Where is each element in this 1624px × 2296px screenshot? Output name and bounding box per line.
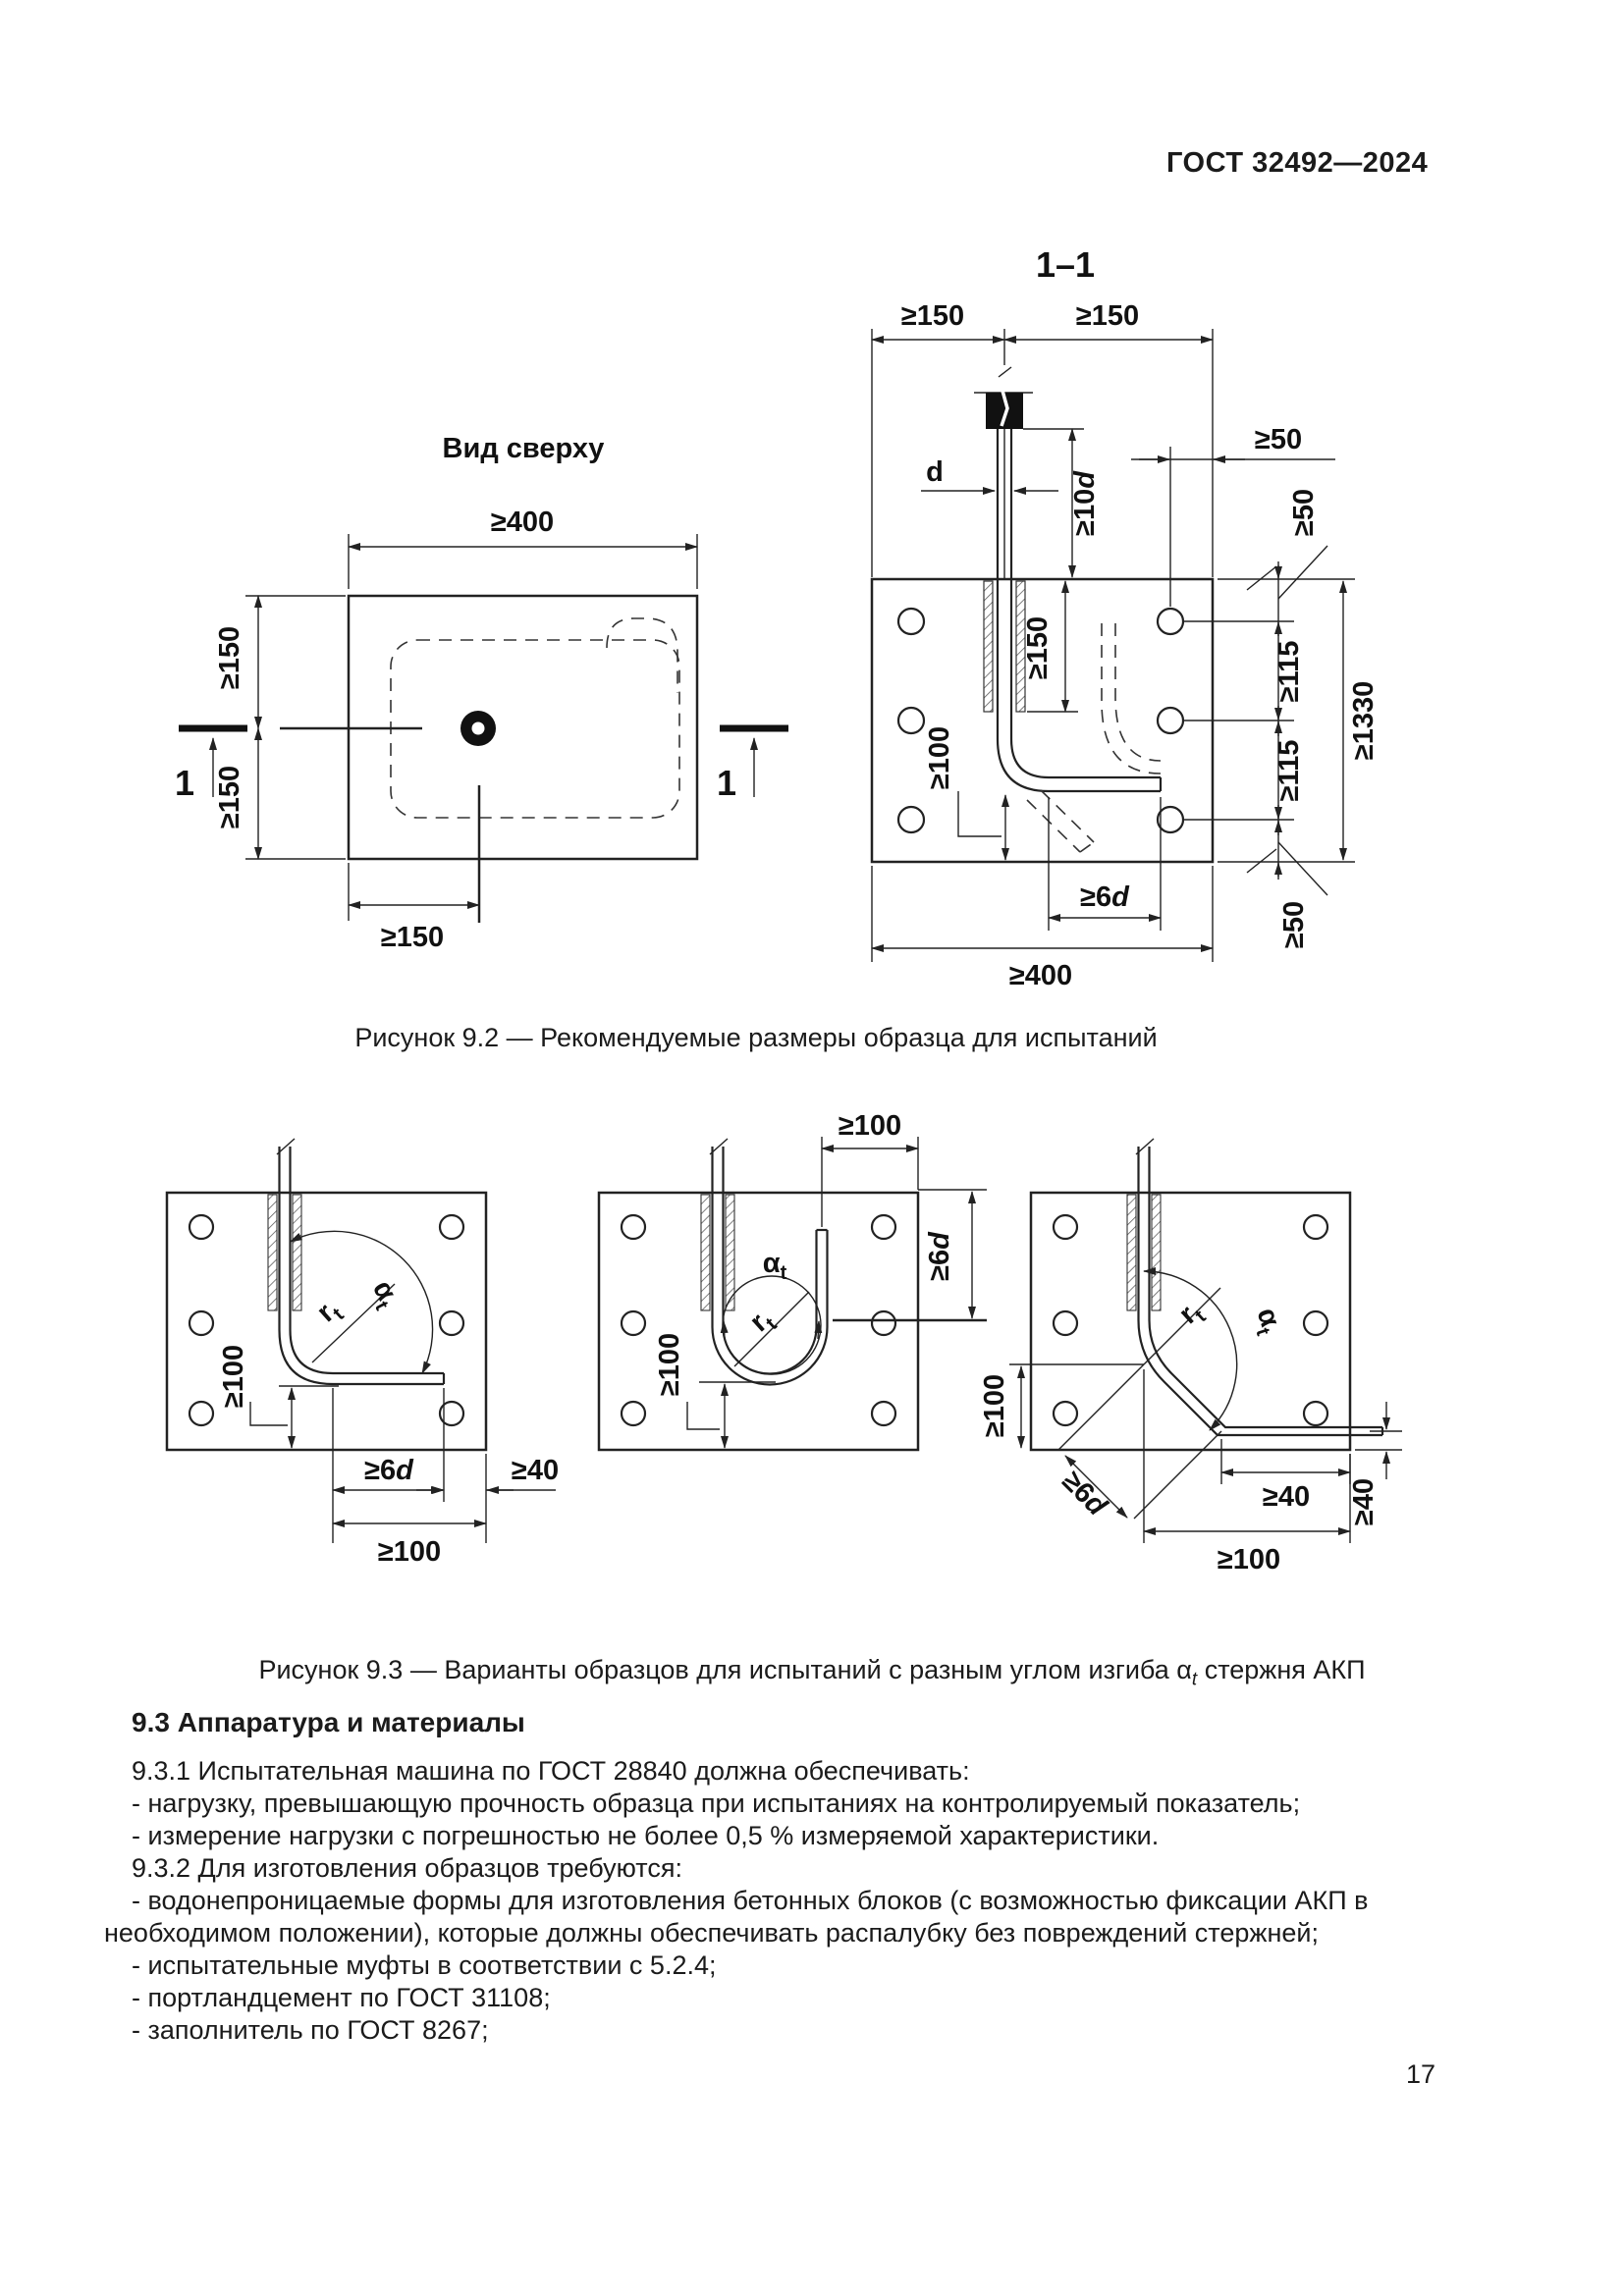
dim-anchor-length: ≥10d — [1023, 429, 1101, 577]
dim-tail-length: ≥6d — [1056, 1364, 1221, 1522]
figure-9-2-drawing: 1–1 Вид сверху 1 1 — [0, 226, 1624, 1001]
dim-edge-top: ≥50 — [1288, 489, 1320, 536]
bend-angle-annotation: αt rt — [291, 1231, 433, 1373]
caption-text: стержня АКП — [1197, 1655, 1365, 1684]
section-marker-right: 1 — [717, 728, 788, 803]
list-item: - испытательные муфты в соответствии с 5… — [104, 1949, 1492, 1982]
section-heading: 9.3 Аппаратура и материалы — [104, 1706, 1492, 1738]
dim-embed-depth: ≥100 — [979, 1364, 1144, 1448]
dim-tail-length: ≥6d — [1049, 797, 1161, 931]
dim-embed-depth: ≥100 — [654, 1333, 776, 1448]
radius-label: rt — [744, 1303, 782, 1342]
dim-tail-length: ≥6d ≥40 ≥100 — [333, 1388, 559, 1568]
paragraph-9-3-1: 9.3.1 Испытательная машина по ГОСТ 28840… — [104, 1755, 1492, 1788]
caption-text: Рисунок 9.3 — Варианты образцов для испы… — [258, 1655, 1191, 1684]
top-view-title: Вид сверху — [443, 433, 605, 464]
svg-text:≥400: ≥400 — [491, 507, 554, 538]
frp-rod — [268, 1139, 444, 1384]
svg-text:≥150: ≥150 — [901, 300, 964, 332]
svg-text:≥400: ≥400 — [1009, 960, 1072, 991]
svg-text:≥100: ≥100 — [979, 1374, 1010, 1437]
radius-label: rt — [311, 1293, 349, 1332]
variant-90deg: αt rt ≥100 ≥6d ≥40 ≥100 — [167, 1139, 559, 1568]
svg-text:≥40: ≥40 — [1348, 1478, 1380, 1525]
figure-9-2-caption: Рисунок 9.2 — Рекомендуемые размеры обра… — [0, 1023, 1512, 1053]
dim-hole-spacing-1: ≥115 — [1273, 641, 1305, 703]
section-label: 1–1 — [1036, 244, 1095, 285]
variant-135deg: αt rt ≥100 ≥6d ≥40 — [979, 1139, 1402, 1575]
dim-edge-bottom: ≥50 — [1278, 901, 1310, 948]
list-item: - водонепроницаемые формы для изготовлен… — [104, 1885, 1492, 1949]
top-view: Вид сверху 1 1 — [175, 433, 788, 953]
alpha-label: αt — [763, 1248, 787, 1284]
list-item: - заполнитель по ГОСТ 8267; — [104, 2014, 1492, 2047]
doc-number: ГОСТ 32492—2024 — [1166, 147, 1428, 180]
section-view: ≥150 ≥150 — [872, 300, 1380, 991]
dim-bottom: ≥150 — [349, 785, 479, 953]
svg-text:≥6d: ≥6d — [1056, 1466, 1113, 1523]
svg-text:≥150: ≥150 — [1076, 300, 1139, 332]
list-item: - нагрузку, превышающую прочность образц… — [104, 1788, 1492, 1820]
svg-text:≥100: ≥100 — [654, 1333, 685, 1396]
svg-text:≥50: ≥50 — [1255, 424, 1302, 455]
dim-hole-spacing-2: ≥115 — [1273, 740, 1305, 802]
dim-sleeve-length: ≥150 — [1022, 581, 1078, 712]
svg-text:≥6d: ≥6d — [1080, 881, 1130, 913]
svg-text:≥6d: ≥6d — [924, 1231, 955, 1281]
anchor-head — [974, 329, 1033, 429]
svg-text:≥150: ≥150 — [214, 626, 245, 689]
section-9-3: 9.3 Аппаратура и материалы 9.3.1 Испытат… — [104, 1706, 1492, 2047]
dim-bottom: ≥100 — [378, 1536, 441, 1568]
svg-text:≥150: ≥150 — [381, 922, 444, 953]
rod-hole-mark — [460, 711, 496, 746]
list-item: - портландцемент по ГОСТ 31108; — [104, 1982, 1492, 2014]
dim-total-height: ≥1330 — [1348, 681, 1380, 760]
paragraph-9-3-2: 9.3.2 Для изготовления образцов требуютс… — [104, 1852, 1492, 1885]
figure-9-3-drawing: αt rt ≥100 ≥6d ≥40 ≥100 — [0, 1070, 1624, 1620]
section-marker-label: 1 — [717, 763, 736, 803]
radius-label: rt — [1173, 1295, 1211, 1334]
svg-text:≥6d: ≥6d — [364, 1455, 414, 1486]
svg-text:≥150: ≥150 — [214, 766, 245, 828]
test-sleeve-hatched — [984, 581, 1025, 712]
svg-text:≥40: ≥40 — [1263, 1481, 1310, 1513]
svg-text:d: d — [926, 456, 944, 488]
svg-text:≥100: ≥100 — [1218, 1544, 1280, 1575]
variant-180deg: αt rt ≥100 ≥6d ≥100 — [599, 1110, 987, 1450]
frp-rod — [1127, 1139, 1382, 1435]
dim-edge-right: ≥40 — [1348, 1402, 1402, 1525]
svg-text:≥100: ≥100 — [218, 1345, 249, 1408]
dim-rod-diameter: d — [921, 456, 1058, 491]
figure-9-3-caption: Рисунок 9.3 — Варианты образцов для испы… — [0, 1655, 1624, 1690]
dim-edge: ≥40 — [512, 1455, 559, 1486]
svg-text:≥10d: ≥10d — [1069, 470, 1101, 536]
page-number: 17 — [1406, 2059, 1435, 2090]
svg-text:≥100: ≥100 — [924, 726, 955, 789]
list-item: - измерение нагрузки с погрешностью не б… — [104, 1820, 1492, 1852]
dim-top: ≥100 — [822, 1110, 918, 1227]
dim-width: ≥400 — [349, 507, 697, 589]
svg-text:≥150: ≥150 — [1022, 616, 1054, 679]
embedded-rod-outline-dashed — [391, 640, 679, 818]
dim-embed-depth: ≥100 — [924, 726, 1005, 860]
dim-section-width: ≥400 — [872, 866, 1213, 991]
svg-text:≥100: ≥100 — [839, 1110, 901, 1142]
dim-embed-depth: ≥100 — [218, 1345, 339, 1448]
dim-top: ≥150 ≥150 — [872, 300, 1213, 577]
alpha-label: αt — [1246, 1305, 1288, 1339]
alternate-rod-outline-dashed — [607, 618, 677, 693]
bend-angle-annotation: αt rt — [1144, 1271, 1288, 1430]
document-page: ГОСТ 32492—2024 1–1 Вид сверху — [0, 0, 1624, 2296]
dim-tail-length: ≥6d — [833, 1190, 987, 1320]
section-marker-label: 1 — [175, 763, 194, 803]
